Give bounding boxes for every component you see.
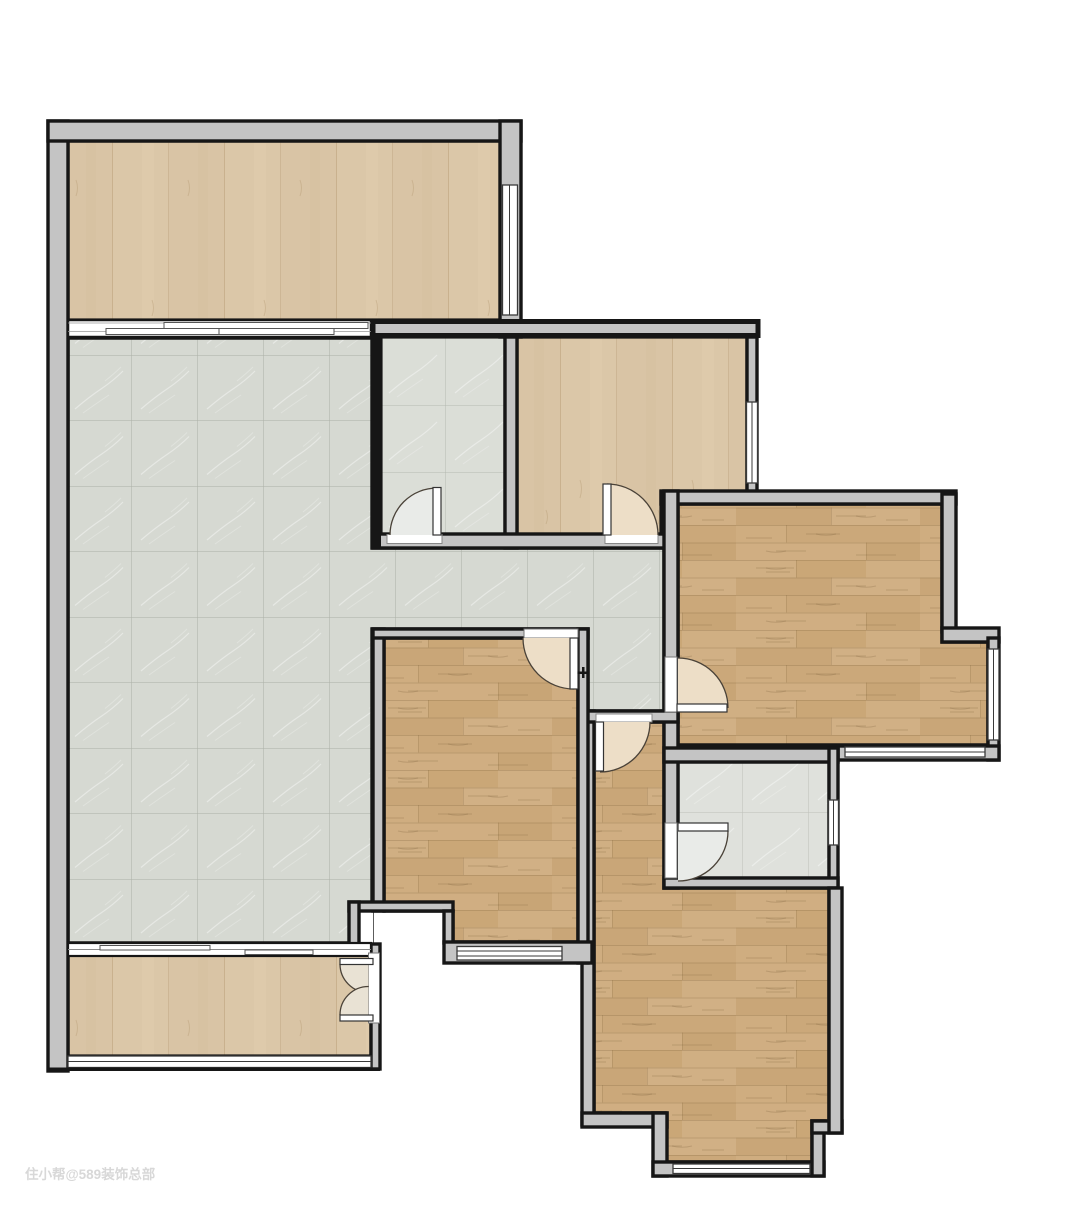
svg-text:住小帮@589装饰总部: 住小帮@589装饰总部 (25, 1166, 156, 1182)
